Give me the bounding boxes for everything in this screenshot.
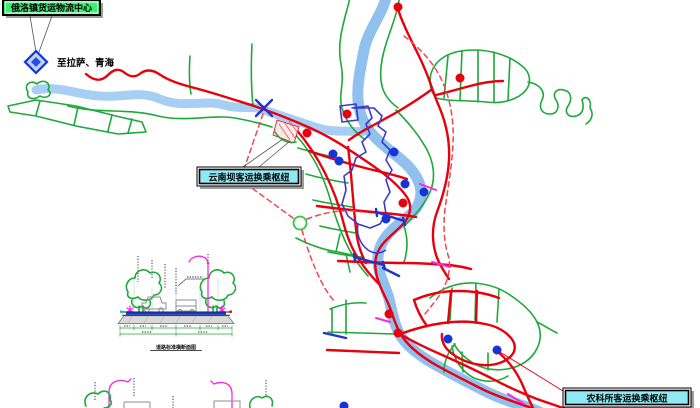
node-blue-dot [329,150,338,159]
road-cross-section: 道路标准横断面图 [118,254,235,351]
tree-icon [85,391,111,408]
to-lhasa-label: 至拉萨、青海 [57,57,115,69]
nongkesuo-hub-label: 农科所客运换乘枢纽 [585,393,667,405]
nongkesuo-hub-callout: 农科所客运换乘枢纽 [563,388,694,408]
node-red-dot [394,329,403,338]
section-title: 道路标准横断面图 [156,344,196,351]
planning-map: 道路标准横断面图 至拉萨、青海 俄洛镇货运物流中心 云南坝客运换乘枢纽 [0,0,700,408]
road-cross-section-partial [85,378,272,408]
car-icon [124,402,150,408]
node-blue-dot [340,402,349,408]
node-red-dot [303,129,312,138]
node-red-dot [343,110,352,119]
node-red-dot [399,199,408,208]
yunnanba-hub-label: 云南坝客运换乘枢纽 [208,172,289,184]
map-canvas: 道路标准横断面图 至拉萨、青海 俄洛镇货运物流中心 云南坝客运换乘枢纽 [0,0,700,408]
tree-icon [126,270,161,312]
logistics-center-label: 俄洛镇货运物流中心 [10,2,92,14]
street-lamp-icon [109,379,131,408]
boundary-vertex-circle [294,217,307,230]
logistics-center-callout: 俄洛镇货运物流中心 [3,0,103,18]
node-blue-dot [335,157,344,166]
node-blue-dot [493,346,502,355]
yunnanba-hub-callout: 云南坝客运换乘枢纽 [197,167,304,189]
node-red-dot [385,310,394,319]
node-red-dot [456,74,465,83]
car-icon [176,300,196,314]
node-blue-dot [420,188,429,197]
node-red-dot [394,3,403,12]
highway-diamond-icon [25,51,47,73]
node-blue-dot [401,180,410,189]
car-icon [142,297,166,312]
node-blue-dot [390,148,399,157]
tree-icon [250,396,273,408]
node-blue-dot [444,335,453,344]
car-icon [214,401,240,408]
node-blue-dot [382,215,391,224]
